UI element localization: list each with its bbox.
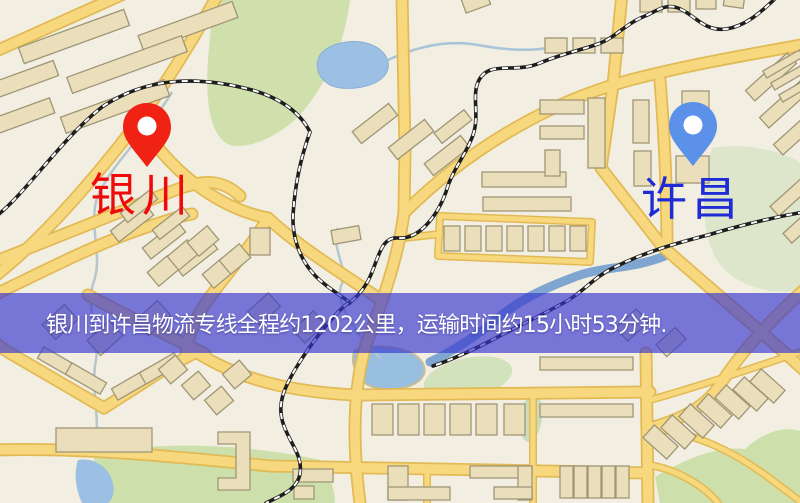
destination-pin-icon bbox=[667, 101, 719, 167]
route-info-text: 银川到许昌物流专线全程约1202公里，运输时间约15小时53分钟. bbox=[46, 307, 667, 339]
origin-city-label: 银川 bbox=[90, 172, 194, 218]
origin-pin-icon bbox=[121, 102, 173, 168]
destination-city-label: 许昌 bbox=[641, 176, 743, 222]
map-canvas bbox=[0, 0, 800, 503]
map-container: 银川 许昌 银川到许昌物流专线全程约1202公里，运输时间约15小时53分钟. bbox=[0, 0, 800, 503]
route-info-banner: 银川到许昌物流专线全程约1202公里，运输时间约15小时53分钟. bbox=[0, 293, 800, 353]
